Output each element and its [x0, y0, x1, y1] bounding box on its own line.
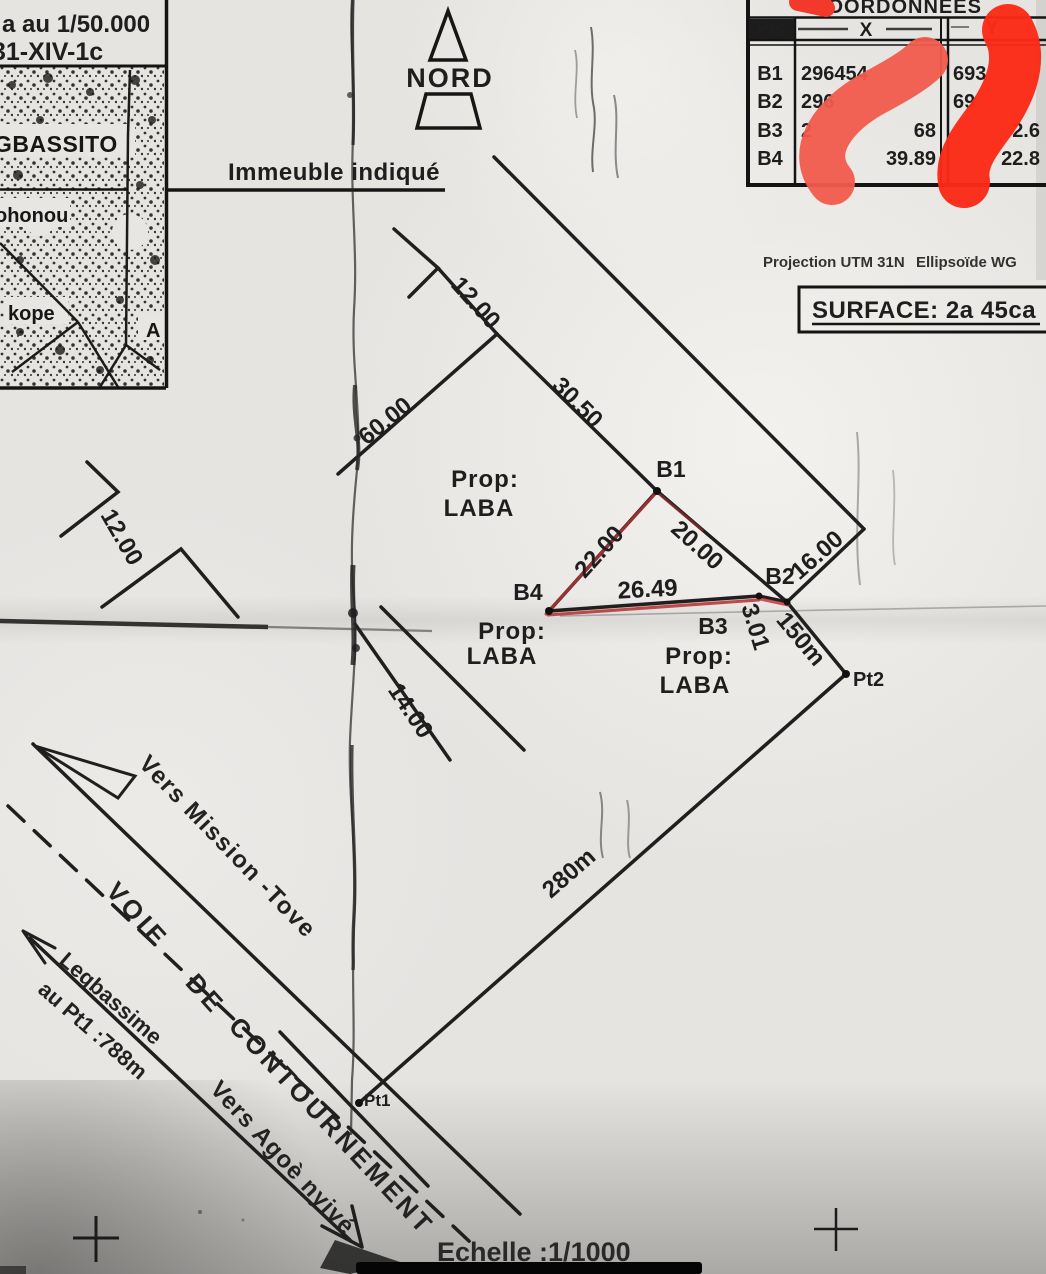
coord-b1-pt: B1 — [757, 63, 783, 85]
vertex-label-b3: B3 — [698, 613, 727, 639]
coord-header-pts: Pts — [756, 19, 786, 40]
coord-b3-x-right: 68 — [914, 120, 936, 142]
coord-b1-y: 693 — [953, 63, 986, 85]
scan-edge-bar-left — [0, 1266, 26, 1274]
surface-label: SURFACE: 2a 45ca — [812, 297, 1036, 324]
red-blob-top — [798, 2, 826, 8]
projection-note-2: Ellipsoïde WG — [916, 254, 1017, 271]
projection-note-1: Projection UTM 31N — [763, 254, 905, 271]
building-note-label: Immeuble indiqué — [228, 159, 440, 186]
coord-header-x: X — [860, 20, 873, 41]
owner-name-3: LABA — [660, 672, 731, 699]
coord-b4-pt: B4 — [757, 148, 783, 170]
inset-scale-note: a au 1/50.000 — [2, 11, 150, 38]
vertex-label-b4: B4 — [513, 579, 543, 605]
vertex-label-pt1: Pt1 — [364, 1091, 390, 1110]
inset-sheet-number: 31-XIV-1c — [0, 38, 103, 66]
vertex-label-b2: B2 — [765, 563, 794, 589]
coord-b4-y: 22.8 — [1001, 148, 1040, 170]
coord-table-title: COORDONNÉES — [812, 0, 982, 18]
label-26-49: 26.49 — [617, 574, 678, 604]
plan-canvas: a au 1/50.000 31-XIV-1c GBASSITO ohonou … — [0, 0, 1046, 1274]
vertex-label-pt2: Pt2 — [853, 669, 884, 691]
coord-b4-x: 39.89 — [886, 148, 936, 170]
inset-place-lagbassito: GBASSITO — [0, 131, 118, 157]
inset-marker-a: A — [146, 320, 160, 342]
coord-b3-pt: B3 — [757, 120, 783, 142]
inset-place-kope: kope — [8, 303, 55, 325]
owner-name-2: LABA — [467, 643, 538, 670]
scanned-survey-plan: a au 1/50.000 31-XIV-1c GBASSITO ohonou … — [0, 0, 1046, 1274]
north-label: NORD — [406, 63, 494, 93]
coord-b2-pt: B2 — [757, 91, 783, 113]
owner-prefix-3: Prop: — [665, 643, 733, 670]
vertex-label-b1: B1 — [656, 456, 686, 482]
owner-prefix-2: Prop: — [478, 618, 546, 645]
owner-prefix-1: Prop: — [451, 466, 519, 493]
inset-place-ohonou: ohonou — [0, 205, 68, 227]
scan-edge-bar — [356, 1262, 702, 1274]
owner-name-1: LABA — [444, 495, 515, 522]
